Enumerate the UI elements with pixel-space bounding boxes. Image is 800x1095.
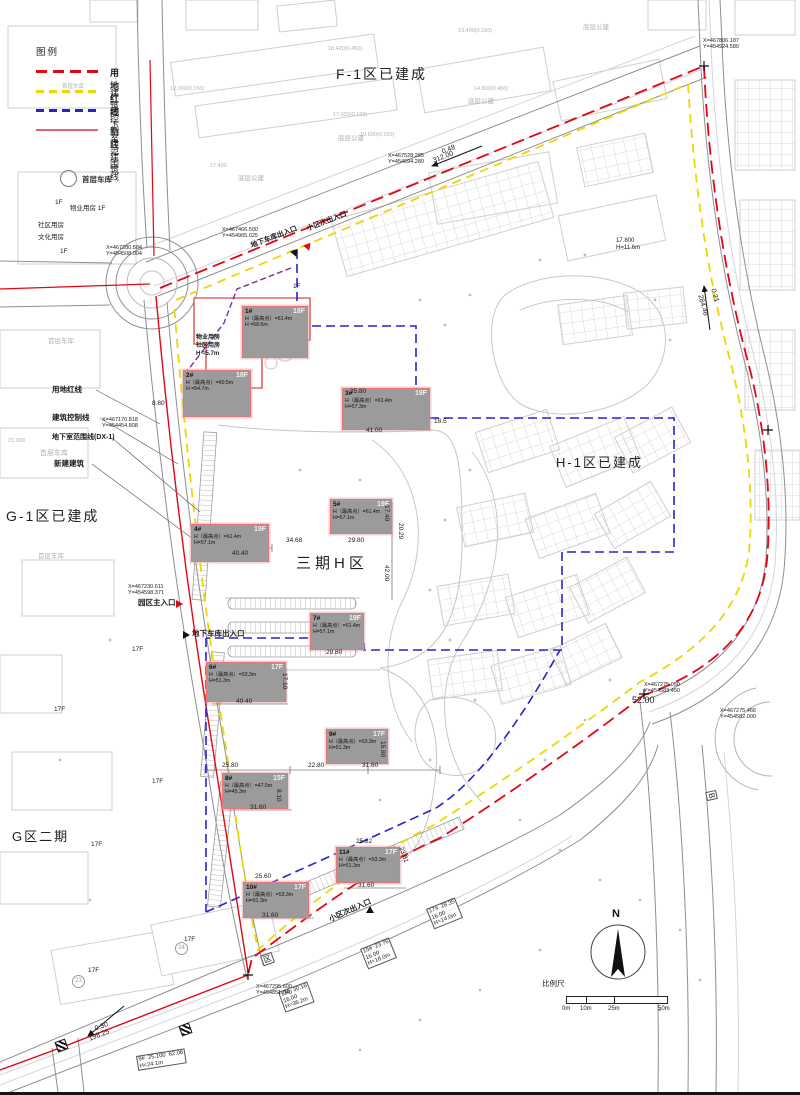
dimension-label: 25.82	[356, 838, 372, 845]
dimension-label: 8.10	[275, 789, 282, 802]
building-id: 7#	[313, 615, 320, 623]
building-id: 1#	[245, 308, 252, 316]
scale-label-50: 50m	[658, 1006, 670, 1012]
map-text: 底层公建	[238, 175, 264, 182]
building-6: 6#17F H（最高点）=53.3m H=51.3m	[206, 662, 286, 702]
map-text: 17.400	[210, 163, 227, 169]
entrance-main: 园区主入口	[138, 599, 176, 608]
building-hmax: H（最高点）=61.4m	[194, 534, 266, 541]
building-floors: 17F	[294, 884, 306, 892]
scale-tick	[614, 997, 615, 1003]
building-id: 4#	[194, 526, 201, 534]
map-text: 1F	[55, 199, 63, 206]
property-house-line3: H =5.7m	[196, 350, 220, 358]
coordinate-label: X=467280.584 Y=454508.004	[106, 245, 142, 258]
coordinate-label: X=467230.611 Y=454598.371	[128, 584, 164, 597]
compass-north-label: N	[612, 908, 620, 920]
legend-label: 新建建筑	[110, 124, 119, 176]
dimension-label: 42.00	[383, 565, 390, 581]
map-text: 1F	[293, 283, 301, 290]
coordinate-label: X=467528.285 Y=454694.280	[388, 153, 424, 166]
building-2: 2#18F H（最高点）=60.5m H =54.7m	[183, 370, 251, 417]
dimension-label: 29.80	[326, 649, 342, 656]
map-text: 17F	[132, 646, 143, 653]
dimension-label: 41.00	[366, 427, 382, 434]
dimension-label: 17.10	[281, 673, 288, 689]
map-text: 物业用房 1F	[70, 205, 105, 212]
coordinate-label: X=467275.466 Y=454582.000	[720, 708, 756, 721]
building-id: 5#	[333, 501, 340, 509]
legend: 图例 用地红线 首层车库 建筑控制线 地下室范围线 新建建筑	[30, 44, 235, 156]
building-floors: 19F	[415, 390, 427, 398]
scale-bar-ruler	[566, 996, 668, 1004]
map-text: 24	[175, 942, 188, 955]
building-4: 4#19F H（最高点）=61.4m H=57.1m	[191, 524, 269, 562]
map-text: 17F	[91, 841, 102, 848]
area-label-f1: F-1区已建成	[336, 64, 427, 84]
map-text: 底层公建	[468, 98, 494, 105]
building-hmax: H（最高点）=53.3m	[246, 892, 306, 899]
scale-tick	[586, 997, 587, 1003]
map-text: 14.800(0.450)	[474, 86, 508, 92]
dimension-label: 15.80	[379, 741, 386, 757]
callout-controlline: 建筑控制线	[52, 414, 90, 423]
dimension-label: 17.40	[383, 505, 390, 521]
redline-sample	[36, 70, 98, 73]
callout-basementline: 地下室范围线(DX-1)	[52, 434, 115, 442]
area-label-g2: G区二期	[12, 826, 69, 845]
area-label-h3: 三期H区	[296, 552, 368, 573]
building-id: 6#	[209, 664, 216, 672]
map-text: 首层车库	[38, 553, 64, 560]
building-11: 11#17F H（最高点）=53.3m H=51.3m	[336, 847, 400, 883]
building-hmax: H（最高点）=61.4m	[245, 316, 305, 323]
building-hmax: H（最高点）=61.4m	[313, 623, 361, 630]
coordinate-label: X=467466.500 Y=454965.025	[222, 227, 258, 240]
callout-redline: 用地红线	[52, 386, 82, 395]
road-distance-label: 52.00	[632, 695, 655, 705]
building-hmax: H（最高点）=61.4m	[345, 398, 427, 405]
dimension-label: 31.60	[362, 762, 378, 769]
dimension-label: 35.80	[350, 388, 366, 395]
property-house-label: 物业用房 社区用房 H =5.7m	[196, 334, 220, 358]
building-h: H =54.7m	[186, 386, 248, 393]
entrance-arrow-icon	[176, 600, 183, 608]
legend-title: 图例	[36, 44, 59, 58]
building-id: 2#	[186, 372, 193, 380]
building-floors: 17F	[385, 849, 397, 857]
building-floors: 15F	[273, 775, 285, 783]
legend-faint-text: 首层车库	[62, 84, 84, 90]
building-hmax: H（最高点）=53.3m	[209, 672, 283, 679]
scale-label-25: 25m	[608, 1006, 620, 1012]
garage-symbol-icon	[60, 170, 77, 187]
building-floors: 18F	[293, 308, 305, 316]
coordinate-label: X=467275.050 Y=454583.450	[644, 682, 680, 695]
building-h: H=57.1m	[333, 515, 389, 522]
callout-garage: 首层车库	[40, 450, 68, 458]
building-floors: 18F	[236, 372, 248, 380]
scale-bar-title: 比例尺	[542, 978, 565, 989]
scale-label-0: 0m	[562, 1006, 570, 1012]
existing-building-annotation: 17.800 H=11.6m	[616, 238, 640, 252]
dimension-label: 8.80	[152, 400, 165, 407]
building-hmax: H（最高点）=53.3m	[339, 857, 397, 864]
building-h: H=57.1m	[313, 629, 361, 636]
building-h: H=57.1m	[194, 540, 266, 547]
building-h: H=51.3m	[339, 863, 397, 870]
building-1: 1#18F H（最高点）=61.4m H =58.6m	[242, 306, 308, 358]
dimension-label: 31.60	[250, 804, 266, 811]
basementline-sample	[36, 109, 98, 112]
dimension-label: 31.60	[262, 912, 278, 919]
site-plan-canvas: 图例 用地红线 首层车库 建筑控制线 地下室范围线 新建建筑 首层车库 F-1区…	[0, 0, 800, 1095]
building-floors: 17F	[373, 731, 385, 739]
garage-symbol-label: 首层车库	[82, 176, 112, 185]
map-text: 底层公建	[583, 24, 609, 31]
building-id: 9#	[329, 731, 336, 739]
building-7: 7#19F H（最高点）=61.4m H=57.1m	[310, 613, 364, 650]
newbuilding-sample	[36, 129, 98, 131]
building-h: H=57.3m	[345, 404, 427, 411]
dimension-label: 40.40	[232, 550, 248, 557]
map-text: 13.400(0.150)	[458, 28, 492, 34]
compass	[591, 925, 645, 979]
entrance-arrow-icon	[183, 631, 190, 639]
building-hmax: H（最高点）=61.4m	[333, 509, 389, 516]
dimension-label: 34.68	[286, 537, 302, 544]
map-text: 19.600(0.150)	[360, 132, 394, 138]
building-h: H=51.3m	[246, 898, 306, 905]
map-text: 18.420(0.450)	[328, 46, 362, 52]
coordinate-label: X=467806.187 Y=454924.580	[703, 38, 739, 51]
area-label-g1: G-1区已建成	[6, 506, 99, 526]
building-floors: 19F	[254, 526, 266, 534]
callout-newbuilding: 新建建筑	[54, 460, 84, 469]
map-text: 17F	[184, 936, 195, 943]
coordinate-label: X=467170.818 Y=454454.808	[102, 417, 138, 430]
building-h: H=51.3m	[329, 745, 385, 752]
map-text: 17.020(0.160)	[333, 112, 367, 118]
entrance-arrow-icon	[366, 906, 374, 913]
building-id: 10#	[246, 884, 257, 892]
building-floors: 17F	[271, 664, 283, 672]
entrance-garage-mid: 地下车库出入口	[192, 630, 245, 639]
scale-bar: 比例尺 0m 10m 25m 50m	[542, 978, 722, 1018]
building-h: H=51.3m	[209, 678, 283, 685]
map-text: 首层车库	[48, 338, 74, 345]
dimension-label: 31.60	[358, 882, 374, 889]
map-text: 社区用房	[38, 222, 64, 229]
map-text: 23	[72, 975, 85, 988]
property-house-line1: 物业用房	[196, 334, 220, 342]
courtyard-garden-2	[265, 357, 277, 369]
coordinate-label: X=467295.600 Y=454851.040	[256, 984, 292, 997]
map-text: 17F	[152, 778, 163, 785]
map-text: 17F	[88, 967, 99, 974]
building-hmax: H（最高点）=60.5m	[186, 380, 248, 387]
building-id: 11#	[339, 849, 350, 857]
dimension-label: 29.80	[348, 537, 364, 544]
building-id: 8#	[225, 775, 232, 783]
controlline-sample	[36, 90, 98, 93]
map-text: 1F	[60, 248, 68, 255]
map-text: 文化用房	[38, 234, 64, 241]
map-text: 17F	[54, 706, 65, 713]
building-hmax: H（最高点）=53.3m	[329, 739, 385, 746]
dimension-label: 25.60	[255, 873, 271, 880]
building-h: H =58.6m	[245, 322, 305, 329]
property-house-line2: 社区用房	[196, 342, 220, 350]
dimension-label: 25.80	[222, 762, 238, 769]
area-label-h1: H-1区已建成	[556, 452, 643, 471]
scale-label-10: 10m	[580, 1006, 592, 1012]
compass-needle	[611, 929, 625, 977]
building-floors: 19F	[349, 615, 361, 623]
dimension-label: 40.40	[236, 698, 252, 705]
map-text: 21.900	[8, 438, 25, 444]
dimension-label: 20.29	[397, 523, 404, 539]
dimension-label: 22.80	[308, 762, 324, 769]
dimension-label: 18.5	[434, 418, 447, 425]
